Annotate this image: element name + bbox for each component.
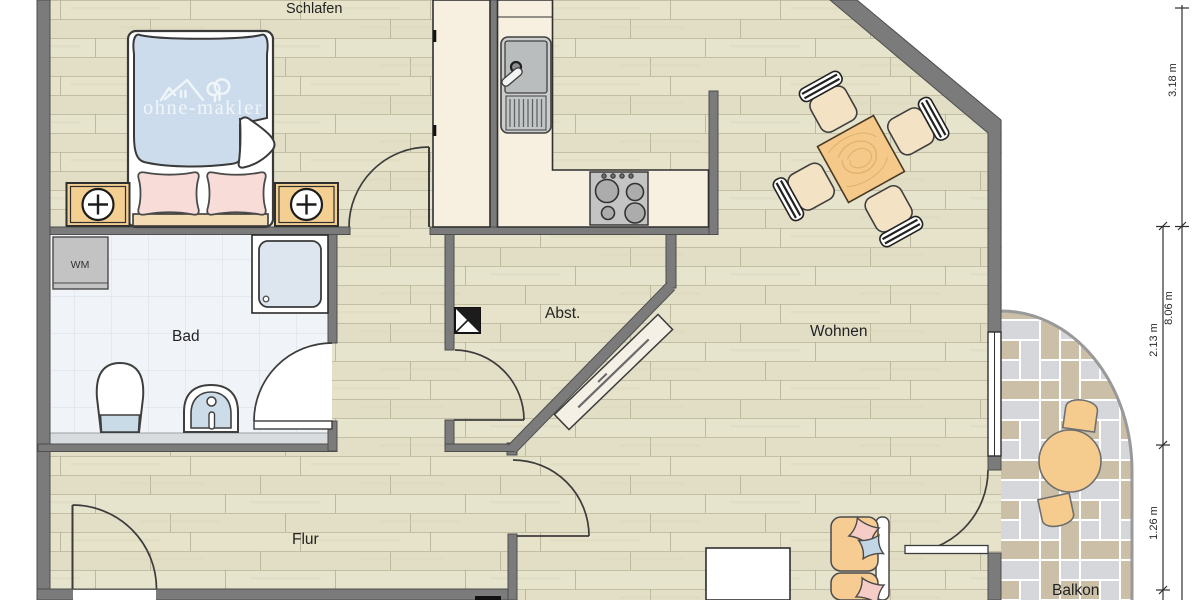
svg-text:3.18 m: 3.18 m	[1167, 63, 1179, 97]
svg-text:WM: WM	[71, 259, 90, 271]
svg-text:Schlafen: Schlafen	[286, 1, 342, 17]
svg-text:Balkon: Balkon	[1052, 582, 1099, 599]
svg-text:2.13 m: 2.13 m	[1148, 323, 1160, 357]
svg-text:1.26 m: 1.26 m	[1148, 506, 1160, 540]
svg-text:8.06 m: 8.06 m	[1163, 291, 1175, 325]
svg-text:Bad: Bad	[172, 328, 200, 345]
svg-text:Flur: Flur	[292, 531, 319, 548]
svg-text:Wohnen: Wohnen	[810, 323, 867, 340]
svg-text:ohne-makler: ohne-makler	[143, 97, 263, 119]
svg-text:Abst.: Abst.	[545, 305, 580, 322]
